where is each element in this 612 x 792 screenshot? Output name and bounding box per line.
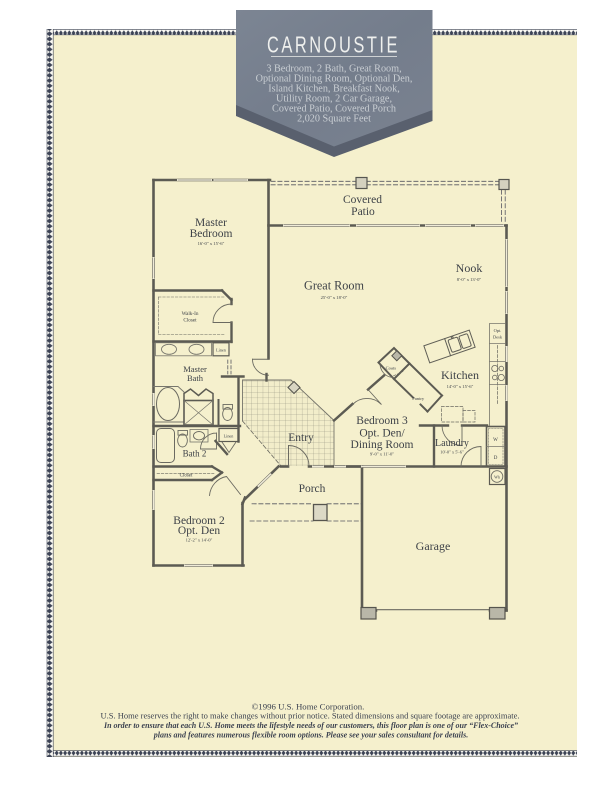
- svg-text:Entry: Entry: [288, 432, 314, 444]
- svg-text:Bath: Bath: [187, 373, 204, 383]
- svg-text:Covered: Covered: [343, 194, 382, 206]
- svg-text:Linen: Linen: [224, 433, 235, 438]
- svg-text:8'-0" x 13'-0": 8'-0" x 13'-0": [457, 277, 482, 282]
- svg-text:Linen: Linen: [216, 348, 227, 353]
- svg-text:9'-0" x 11'-0": 9'-0" x 11'-0": [370, 452, 394, 457]
- svg-text:16'-0" x 15'-6": 16'-0" x 15'-6": [198, 241, 225, 246]
- svg-text:25'-0" x 18'-0": 25'-0" x 18'-0": [321, 295, 348, 300]
- svg-text:Opt. Den/: Opt. Den/: [359, 427, 405, 439]
- svg-text:Laundry: Laundry: [435, 438, 469, 449]
- svg-text:D: D: [494, 456, 498, 461]
- svg-text:Closet: Closet: [183, 318, 197, 324]
- svg-text:Desk: Desk: [493, 335, 503, 340]
- svg-text:plans and features numerous fl: plans and features numerous flexible roo…: [153, 731, 468, 740]
- svg-text:12'-2" x 14'-0": 12'-2" x 14'-0": [186, 538, 213, 543]
- svg-text:W: W: [493, 438, 498, 443]
- svg-text:Patio: Patio: [351, 206, 375, 218]
- svg-text:Wh: Wh: [494, 474, 500, 479]
- svg-text:CARNOUSTIE: CARNOUSTIE: [267, 33, 400, 58]
- svg-text:In order to ensure that each U: In order to ensure that each U.S. Home m…: [103, 721, 518, 730]
- svg-text:Opt.: Opt.: [494, 328, 502, 333]
- svg-text:Dining Room: Dining Room: [351, 439, 414, 451]
- svg-text:Pantry: Pantry: [412, 396, 425, 401]
- svg-text:2,020 Square Feet: 2,020 Square Feet: [297, 114, 371, 125]
- svg-text:Nook: Nook: [456, 261, 483, 275]
- svg-text:Bath 2: Bath 2: [183, 449, 207, 459]
- svg-text:Bedroom: Bedroom: [190, 228, 233, 240]
- svg-text:Coats: Coats: [386, 366, 397, 371]
- svg-text:10'-0" x 5'-6": 10'-0" x 5'-6": [440, 450, 464, 455]
- svg-text:Garage: Garage: [416, 539, 451, 553]
- svg-text:U.S. Home reserves the right t: U.S. Home reserves the right to make cha…: [101, 711, 520, 721]
- svg-text:Walk-In: Walk-In: [182, 311, 199, 317]
- svg-text:Porch: Porch: [299, 483, 326, 495]
- svg-text:Kitchen: Kitchen: [441, 368, 479, 382]
- svg-text:Great Room: Great Room: [304, 279, 364, 293]
- svg-text:Opt. Den: Opt. Den: [178, 525, 220, 537]
- svg-text:Bedroom 3: Bedroom 3: [356, 415, 408, 427]
- svg-text:14'-0" x 15'-6": 14'-0" x 15'-6": [447, 384, 474, 389]
- svg-text:Closet: Closet: [180, 474, 193, 479]
